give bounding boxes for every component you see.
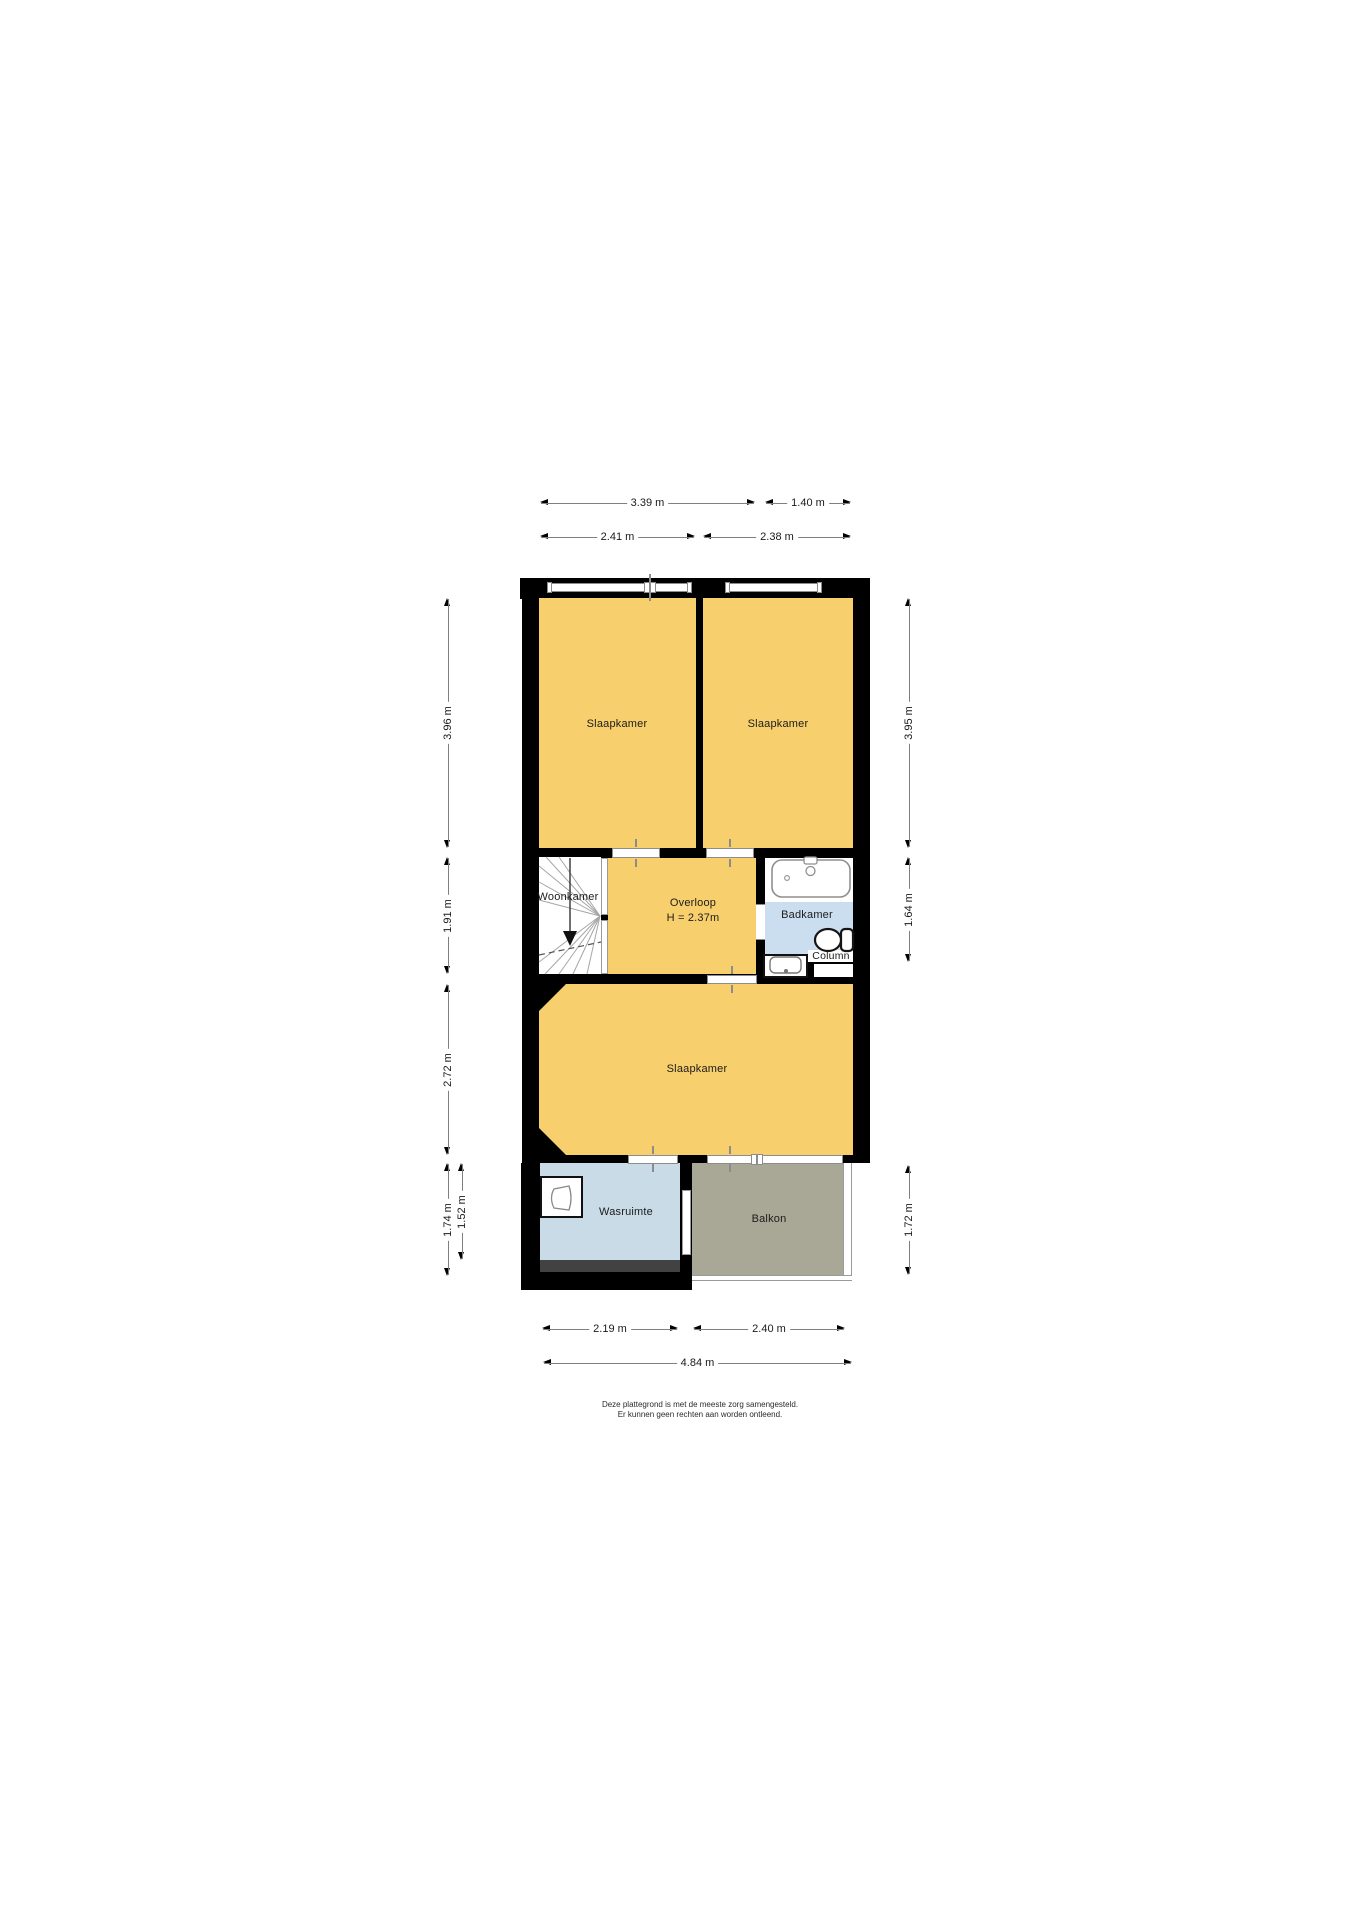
dim-label: 1.72 m	[903, 1199, 915, 1241]
door-landing-bedroom-bottom	[707, 975, 757, 984]
dim-right-1-72: 1.72 m	[902, 1165, 916, 1275]
dim-label: 1.74 m	[442, 1199, 454, 1241]
door-bedroom-left-landing	[612, 848, 660, 858]
window-frame-cap	[687, 582, 692, 593]
balcony-frame-bottom	[692, 1275, 852, 1281]
window-mullion	[757, 1154, 763, 1165]
dim-label: 1.52 m	[456, 1191, 468, 1233]
window-frame-cap	[547, 582, 552, 593]
label-landing: Overloop	[670, 897, 716, 909]
label-balcony: Balkon	[752, 1213, 787, 1225]
balcony-frame-right	[843, 1163, 852, 1281]
dim-right-3-95: 3.95 m	[902, 598, 916, 848]
stair-railing-upper	[601, 858, 608, 915]
label-stairwell-woonkamer: Woonkamer	[538, 891, 599, 903]
dim-label: 4.84 m	[677, 1357, 719, 1369]
disclaimer-line1: Deze plattegrond is met de meeste zorg s…	[350, 1400, 1050, 1410]
door-tick	[731, 985, 733, 993]
window-tick	[729, 1164, 731, 1172]
dim-label: 1.64 m	[903, 889, 915, 931]
dim-label: 1.40 m	[787, 497, 829, 509]
dim-bottom-2-19: 2.19 m	[542, 1322, 678, 1336]
window-tick	[652, 1146, 654, 1154]
label-bedroom-bottom: Slaapkamer	[667, 1063, 728, 1075]
dim-top-2-41: 2.41 m	[540, 530, 695, 544]
dim-top-2-38: 2.38 m	[703, 530, 851, 544]
window-frame-cap	[725, 582, 730, 593]
door-tick	[635, 839, 637, 847]
window-bedroom-left	[547, 583, 692, 592]
window-tick	[652, 1164, 654, 1172]
dim-label: 2.38 m	[756, 531, 798, 543]
label-landing-height: H = 2.37m	[667, 912, 720, 924]
dim-label: 3.96 m	[442, 702, 454, 744]
label-bathroom: Badkamer	[781, 909, 833, 921]
dim-label: 2.41 m	[597, 531, 639, 543]
label-laundry: Wasruimte	[599, 1206, 653, 1218]
window-bedroom-right	[725, 583, 822, 592]
dim-label: 3.39 m	[627, 497, 669, 509]
room-stairwell	[539, 857, 601, 974]
dim-label: 2.19 m	[589, 1323, 631, 1335]
laundry-mat-strip	[540, 1260, 680, 1272]
disclaimer: Deze plattegrond is met de meeste zorg s…	[350, 1400, 1050, 1420]
window-tick	[729, 1146, 731, 1154]
door-bedroom-right-landing	[706, 848, 754, 858]
dim-top-3-39: 3.39 m	[540, 496, 755, 510]
dim-left-2-72: 2.72 m	[441, 984, 455, 1155]
window-mullion	[650, 582, 656, 593]
door-landing-bathroom	[756, 904, 765, 940]
dim-bottom-2-40: 2.40 m	[693, 1322, 845, 1336]
room-bathroom-tub-zone	[765, 858, 853, 902]
washing-machine	[540, 1176, 583, 1218]
dim-top-1-40: 1.40 m	[765, 496, 851, 510]
door-laundry-balcony	[682, 1190, 691, 1255]
window-balcony	[707, 1155, 843, 1164]
dim-label: 2.40 m	[748, 1323, 790, 1335]
stair-railing-lower	[601, 920, 608, 974]
dim-label: 3.95 m	[903, 702, 915, 744]
column-niche	[814, 964, 853, 977]
dim-left-1-91: 1.91 m	[441, 857, 455, 974]
window-laundry	[628, 1155, 678, 1164]
window-tick	[649, 593, 651, 601]
disclaimer-line2: Er kunnen geen rechten aan worden ontlee…	[350, 1410, 1050, 1420]
window-frame-cap	[817, 582, 822, 593]
dim-left-1-52: 1.52 m	[455, 1163, 469, 1260]
dim-left-1-74: 1.74 m	[441, 1163, 455, 1276]
door-tick	[731, 966, 733, 974]
door-tick	[729, 859, 731, 867]
floorplan-canvas: Slaapkamer Slaapkamer Woonkamer Overloop…	[0, 0, 1358, 1920]
label-bedroom-top-right: Slaapkamer	[748, 718, 809, 730]
dim-right-1-64: 1.64 m	[902, 857, 916, 962]
washbasin-box	[763, 954, 808, 978]
door-tick	[729, 839, 731, 847]
label-bedroom-top-left: Slaapkamer	[587, 718, 648, 730]
label-column: Column	[812, 950, 849, 962]
door-tick	[635, 859, 637, 867]
dim-left-3-96: 3.96 m	[441, 598, 455, 848]
dim-label: 1.91 m	[442, 895, 454, 937]
dim-label: 2.72 m	[442, 1049, 454, 1091]
window-tick	[649, 574, 651, 582]
dim-bottom-4-84: 4.84 m	[543, 1356, 852, 1370]
wall-corner-top-left	[520, 578, 547, 599]
